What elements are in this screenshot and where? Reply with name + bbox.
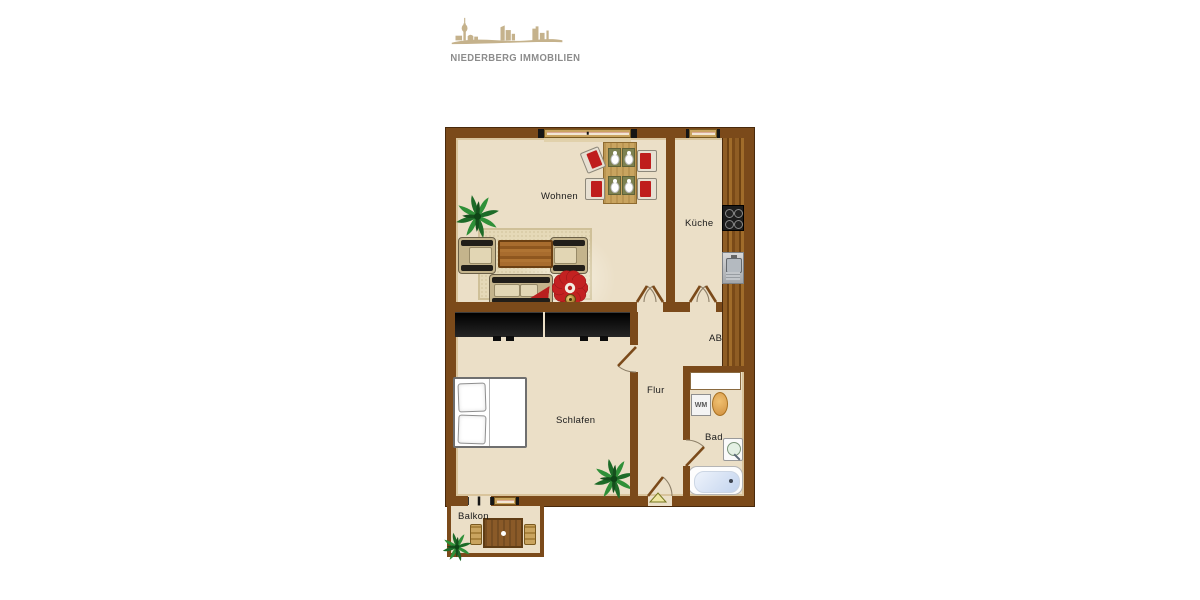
company-name: NIEDERBERG IMMOBILIEN [450, 52, 565, 64]
wall-bath-left-upper [683, 372, 690, 440]
kitchen-sink [722, 252, 744, 284]
room-label-balkon: Balkon [458, 511, 489, 522]
window-cap [516, 497, 519, 505]
dining-chair [637, 150, 657, 172]
room-label-wohnen: Wohnen [541, 191, 578, 202]
plant-icon [442, 532, 472, 562]
stove [722, 205, 744, 231]
place-setting [622, 176, 635, 195]
washing-machine-label: WM [695, 402, 707, 409]
room-label-schlafen: Schlafen [556, 415, 595, 426]
wardrobe-handle [600, 336, 608, 341]
bathtub [688, 466, 743, 495]
wardrobe-handle [493, 336, 501, 341]
double-bed [453, 377, 527, 448]
window-cap [631, 129, 637, 138]
room-label-kueche: Küche [685, 218, 713, 229]
coffee-table [498, 240, 553, 268]
wall-bath-top [683, 366, 744, 372]
toilet [712, 392, 728, 416]
plant-icon [455, 194, 500, 239]
wardrobe-handle [506, 336, 514, 341]
wall-bedroom-hall-lower [630, 372, 638, 496]
place-setting [608, 176, 621, 195]
balcony-table [483, 518, 523, 548]
armchair-right [550, 237, 588, 274]
wall-bedroom-hall-upper [630, 312, 638, 345]
duesseldorf-skyline-icon [448, 16, 568, 46]
plant-icon [593, 458, 635, 500]
room-label-ab: AB [709, 333, 722, 344]
floorplan: WM [446, 128, 754, 558]
wardrobe [545, 312, 630, 337]
wardrobe [455, 312, 543, 337]
pillow [458, 415, 487, 445]
bath-shelf [690, 372, 741, 390]
dining-chair [637, 178, 657, 200]
kitchen-window [689, 129, 717, 138]
wall-bath-left-lower [683, 466, 690, 496]
room-label-bad: Bad [705, 432, 723, 443]
balcony-door-opening [468, 496, 491, 506]
entrance-door-opening [648, 496, 672, 506]
room-label-flur: Flur [647, 385, 665, 396]
armchair-left [458, 237, 496, 274]
balcony-chair [524, 524, 536, 545]
wall-living-kitchen [666, 138, 675, 302]
wall-hall-top-mid [663, 302, 690, 312]
pillow [458, 383, 487, 413]
wall-living-bedroom [456, 302, 637, 312]
window-sill [544, 138, 631, 142]
window-cap [717, 129, 720, 138]
dining-chair [585, 178, 605, 200]
place-setting [622, 148, 635, 167]
place-setting [608, 148, 621, 167]
wardrobe-handle [580, 336, 588, 341]
living-room-window [544, 129, 631, 138]
bath-sink [723, 438, 743, 461]
bedroom-window [494, 497, 516, 505]
company-logo: NIEDERBERG IMMOBILIEN [444, 16, 572, 64]
washing-machine: WM [691, 394, 711, 416]
